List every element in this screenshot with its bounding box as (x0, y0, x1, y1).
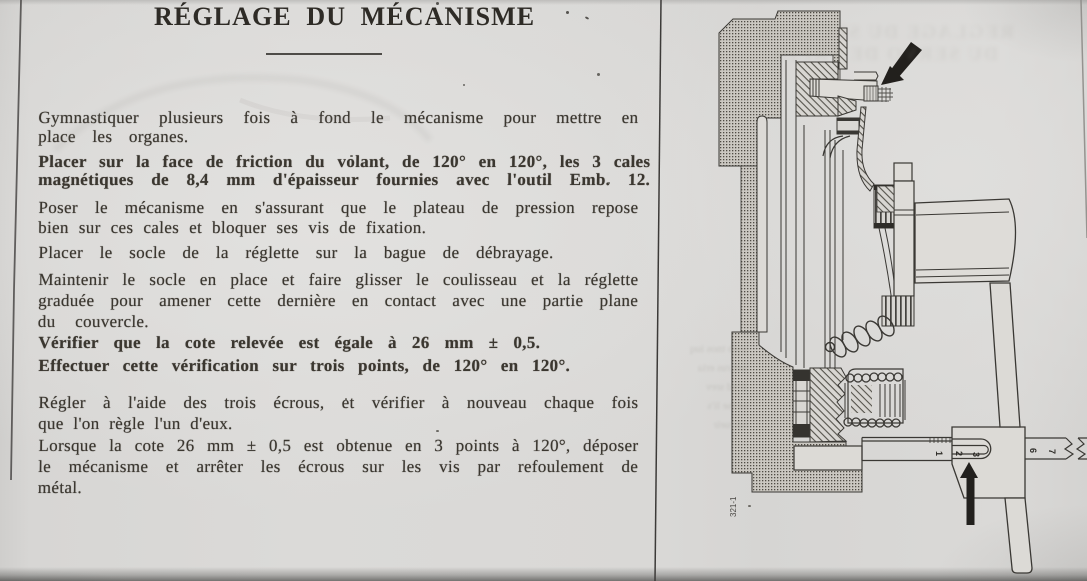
svg-text:6: 6 (1028, 448, 1038, 453)
svg-text:7: 7 (1047, 449, 1057, 454)
svg-text:1: 1 (934, 451, 944, 456)
svg-text:2: 2 (954, 451, 964, 456)
svg-text:3: 3 (971, 452, 981, 457)
svg-text:321-1: 321-1 (729, 496, 738, 517)
